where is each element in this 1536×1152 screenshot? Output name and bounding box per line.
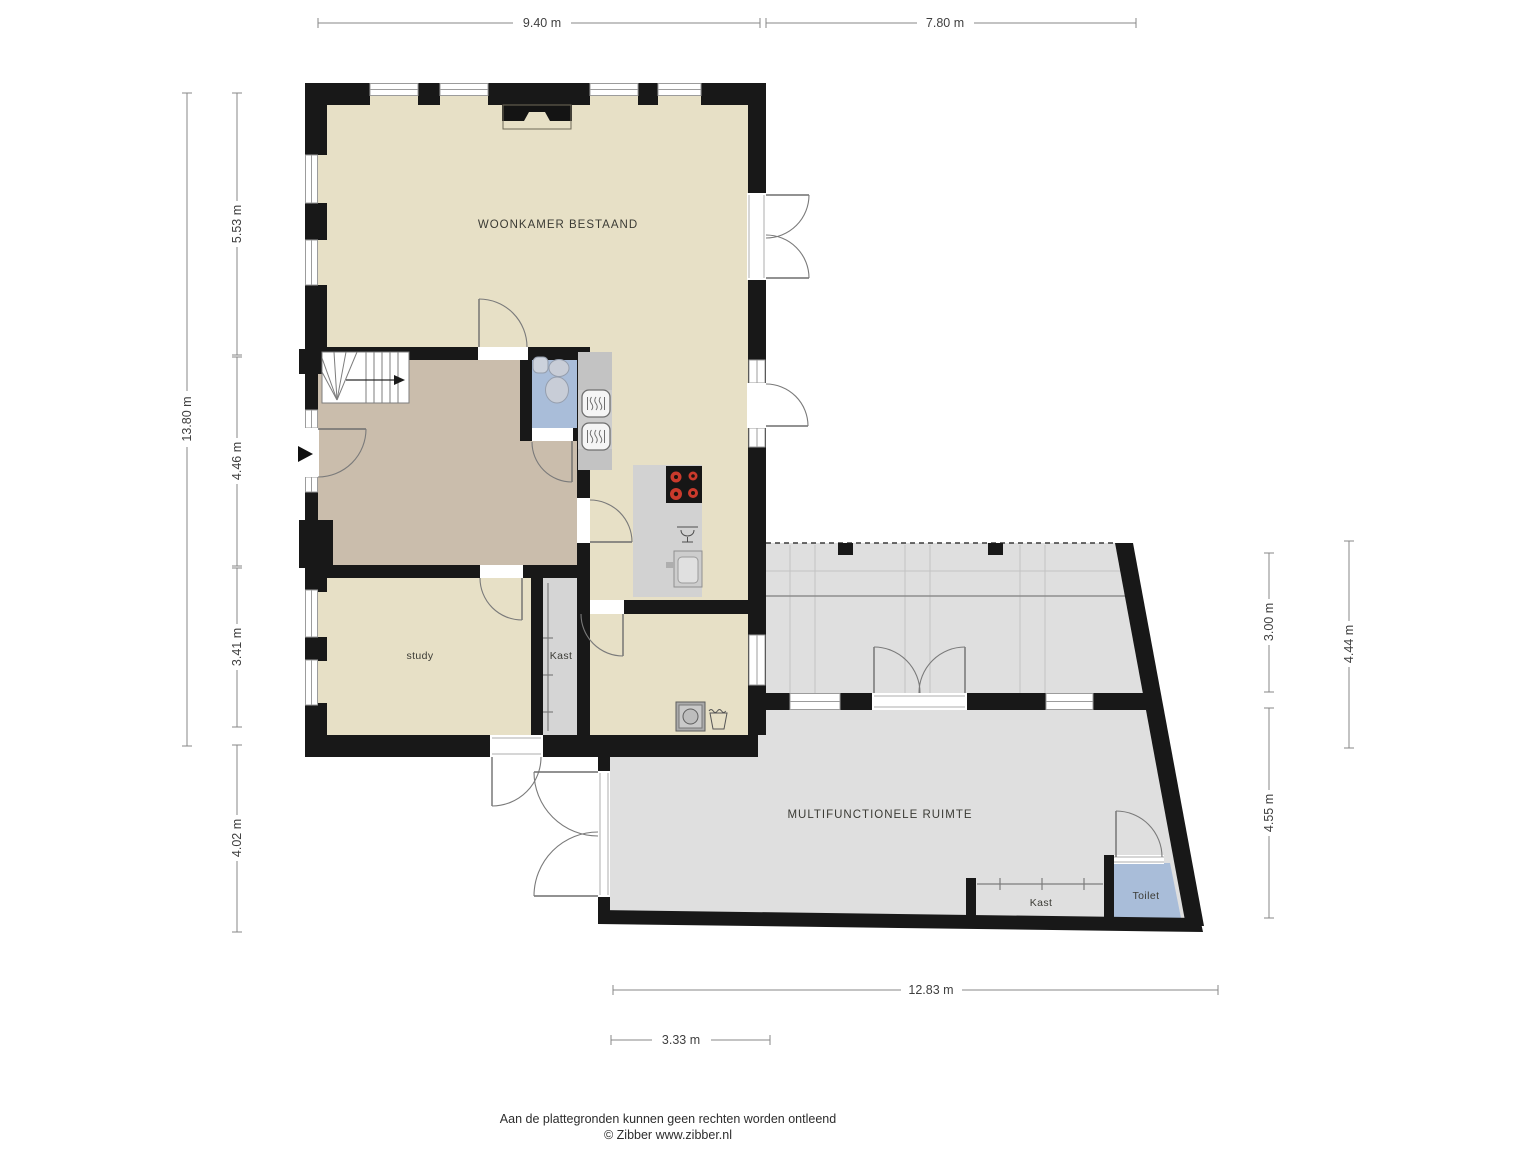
label-study: study xyxy=(406,650,433,662)
window xyxy=(306,477,318,492)
window xyxy=(306,660,318,705)
footer: Aan de plattegronden kunnen geen rechten… xyxy=(500,1112,836,1142)
window xyxy=(306,410,318,428)
footer-credit: © Zibber www.zibber.nl xyxy=(604,1128,732,1142)
svg-text:4.46 m: 4.46 m xyxy=(230,442,244,480)
svg-text:3.33 m: 3.33 m xyxy=(662,1033,700,1047)
oven-icon xyxy=(582,423,610,450)
window xyxy=(790,694,840,710)
dimension-left-1: 5.53 m xyxy=(230,93,244,355)
svg-text:3.41 m: 3.41 m xyxy=(230,628,244,666)
oven-column xyxy=(578,352,612,470)
dimension-left-total: 13.80 m xyxy=(180,93,194,746)
floorplan-svg: WOONKAMER BESTAAND study Kast MULTIFUNCT… xyxy=(0,0,1536,1152)
washing-machine-icon xyxy=(676,702,705,731)
dimension-top-left: 9.40 m xyxy=(318,16,760,30)
footer-disclaimer: Aan de plattegronden kunnen geen rechten… xyxy=(500,1112,836,1126)
fireplace-chimney xyxy=(488,83,590,105)
svg-text:5.53 m: 5.53 m xyxy=(230,205,244,243)
window xyxy=(749,428,765,447)
cooktop-icon xyxy=(666,466,702,503)
label-woonkamer: WOONKAMER BESTAAND xyxy=(478,219,638,231)
staircase xyxy=(322,352,409,403)
door-study-exterior xyxy=(490,735,543,806)
svg-text:13.80 m: 13.80 m xyxy=(180,396,194,441)
floorplan-page: WOONKAMER BESTAAND study Kast MULTIFUNCT… xyxy=(0,0,1536,1152)
label-kast-study: Kast xyxy=(550,650,573,662)
dimension-left-3: 3.41 m xyxy=(230,568,244,727)
dimension-top-right: 7.80 m xyxy=(766,16,1136,30)
window xyxy=(1046,694,1093,710)
svg-text:4.02 m: 4.02 m xyxy=(230,819,244,857)
label-multifunctionele-ruimte: MULTIFUNCTIONELE RUIMTE xyxy=(787,809,972,821)
window xyxy=(440,84,488,96)
svg-text:4.44 m: 4.44 m xyxy=(1342,625,1356,663)
oven-icon xyxy=(582,390,610,417)
terrace-floor xyxy=(766,543,1143,693)
label-kast-multi: Kast xyxy=(1030,897,1053,909)
dimension-left-4: 4.02 m xyxy=(230,745,244,932)
dimension-right-3: 4.44 m xyxy=(1342,541,1356,748)
window xyxy=(590,84,638,96)
double-door-living-east xyxy=(747,193,809,280)
svg-text:3.00 m: 3.00 m xyxy=(1262,603,1276,641)
double-door-multi-west xyxy=(534,771,610,897)
svg-text:12.83 m: 12.83 m xyxy=(908,983,953,997)
window xyxy=(306,155,318,203)
svg-text:9.40 m: 9.40 m xyxy=(523,16,561,30)
dimension-bottom-1: 12.83 m xyxy=(613,983,1218,997)
window xyxy=(749,635,765,685)
dimension-right-2: 4.55 m xyxy=(1262,708,1276,918)
svg-text:4.55 m: 4.55 m xyxy=(1262,794,1276,832)
door-living-east xyxy=(747,383,808,428)
dimension-bottom-2: 3.33 m xyxy=(611,1033,770,1047)
window xyxy=(306,590,318,637)
label-toilet-multi: Toilet xyxy=(1133,890,1160,902)
window xyxy=(658,84,701,96)
window xyxy=(370,84,418,96)
dimension-right-1: 3.00 m xyxy=(1262,553,1276,692)
window xyxy=(306,240,318,285)
window xyxy=(749,360,765,383)
svg-text:7.80 m: 7.80 m xyxy=(926,16,964,30)
kitchen-island xyxy=(633,465,702,597)
room-laundry-floor xyxy=(590,614,748,735)
dimension-left-2: 4.46 m xyxy=(230,357,244,566)
